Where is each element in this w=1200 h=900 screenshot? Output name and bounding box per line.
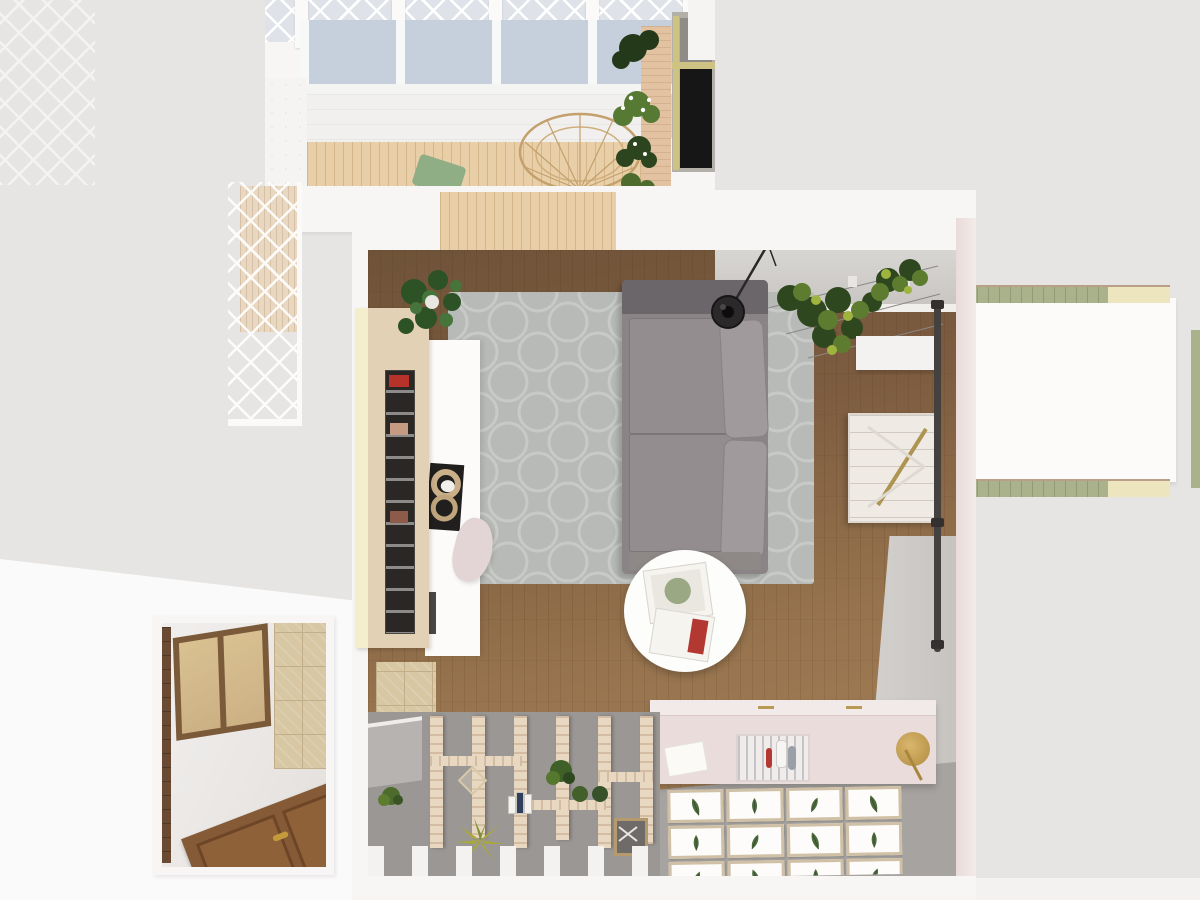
rope-coasters (426, 463, 465, 531)
trellis-base (228, 419, 302, 426)
balcony-pillar (688, 0, 715, 60)
botanical-print (668, 825, 725, 859)
amber-pane (179, 637, 221, 734)
bottle (524, 794, 532, 814)
potted-plant (376, 782, 406, 812)
barn-door (848, 413, 940, 523)
window-frame-bar (673, 16, 679, 170)
leaf-art (804, 793, 824, 815)
black-placemat (426, 463, 465, 531)
botanical-print (845, 786, 902, 820)
wood-slat (514, 716, 527, 848)
cream-wall-strip (355, 308, 368, 648)
bottle (776, 740, 787, 768)
bench-cream-segment (1108, 481, 1170, 497)
poster-red-photo (389, 375, 409, 387)
potted-plant-on-wardrobe (386, 262, 478, 362)
pendant-lamp (664, 250, 784, 340)
rail-bracket (931, 518, 944, 527)
neighbor-cabinet-top (966, 298, 1176, 482)
white-post-row (368, 846, 660, 876)
botanical-print (786, 787, 843, 821)
leaf-art (867, 830, 881, 848)
living-room (352, 190, 976, 900)
leaf-art (808, 867, 822, 876)
entrance-door-area (162, 743, 326, 867)
leaf-art (689, 833, 703, 851)
bench-cream-segment (1108, 287, 1170, 303)
small-plants (570, 784, 610, 804)
balcony-quilted-wall (265, 78, 307, 190)
green-bench-side (1191, 330, 1200, 488)
sofa-back-pillow (720, 439, 768, 558)
balcony-opening-floor (440, 192, 616, 250)
sofa-seat-cushion (629, 434, 733, 552)
botanical-print-gallery (667, 786, 903, 876)
sideboard-handle (758, 706, 774, 709)
hallway (152, 615, 334, 875)
balcony-plants (597, 18, 681, 194)
rail-bracket (931, 300, 944, 309)
sideboard-handle (846, 706, 862, 709)
leaf-art (687, 867, 707, 876)
botanical-print (846, 858, 903, 876)
glassware-rack (736, 734, 810, 782)
amber-pane (223, 630, 265, 727)
leaf-art (684, 794, 706, 819)
wood-slat (430, 716, 443, 848)
bottle (508, 796, 516, 814)
wall-shelf (856, 336, 940, 370)
leaf-art (862, 790, 884, 815)
terrace (368, 712, 660, 876)
botanical-print (667, 789, 724, 823)
leaf-art (865, 864, 885, 876)
right-wall-pink-edge (956, 218, 976, 900)
botanical-print (846, 822, 903, 856)
wood-slat (598, 716, 611, 848)
poster-photo (390, 511, 408, 523)
window-frame-bar (672, 62, 715, 69)
sideboard-top-face (650, 700, 936, 716)
botanical-print (669, 861, 726, 876)
botanical-print (787, 859, 844, 876)
rail-bracket (931, 640, 944, 649)
papers (664, 741, 709, 777)
botanical-print (728, 860, 785, 876)
magazine (649, 608, 715, 663)
x-art (617, 821, 639, 847)
trellis-lattice (228, 182, 302, 426)
photo-collage-poster (385, 370, 415, 634)
entrance-door (181, 769, 326, 867)
green-bench-bottom (966, 479, 1170, 497)
barn-door-rail (934, 300, 941, 652)
leaf-art (748, 796, 762, 814)
coffee-table (624, 550, 746, 672)
green-bench-top (966, 285, 1170, 303)
corner-trellis-pattern (0, 0, 95, 185)
leaf-art (804, 827, 826, 852)
leaf-art (745, 864, 767, 876)
wood-crossbar (598, 772, 653, 782)
barn-door-brace (864, 423, 930, 511)
wood-crossbar (430, 756, 522, 766)
room-bottom-wall (352, 876, 976, 900)
leaf-art (746, 830, 766, 852)
bottle (516, 792, 524, 814)
floorplan-render (0, 0, 1200, 900)
poster-photo (390, 423, 408, 435)
candle-bottles (508, 792, 534, 814)
botanical-print (726, 788, 783, 822)
hallway-amber-window (173, 623, 271, 741)
trellis-frame (297, 182, 302, 426)
window-pane-dark (680, 68, 712, 168)
magazine-cover-art (687, 618, 708, 654)
sideboard (650, 700, 936, 784)
botanical-print (786, 823, 843, 857)
hallway-interior (162, 623, 326, 867)
bottle (788, 746, 796, 770)
bottle (766, 748, 772, 768)
botanical-print (727, 824, 784, 858)
garden-trellis (228, 182, 302, 426)
